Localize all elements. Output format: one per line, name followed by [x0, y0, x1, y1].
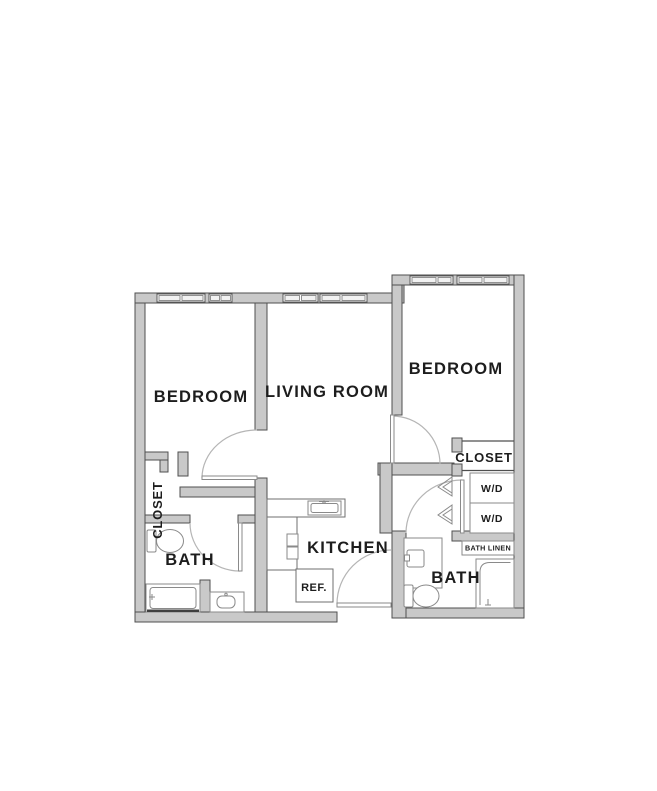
wall-hall-left: [380, 463, 392, 533]
wall-bedroom-living-lower: [255, 478, 267, 612]
floor-plan: BEDROOM LIVING ROOM BEDROOM CLOSET BATH …: [0, 0, 657, 791]
label-bedroom-right: BEDROOM: [409, 360, 504, 378]
wall-bedroom2-left: [392, 285, 402, 415]
label-closet-left: CLOSET: [150, 481, 165, 539]
label-wd-upper: W/D: [481, 483, 503, 495]
wall-tub-stub: [200, 580, 210, 612]
wall-outer-left: [135, 293, 145, 622]
door-leaf-bedroom1: [202, 476, 257, 480]
toilet2-tank-icon: [404, 585, 413, 607]
door-leaf-bedroom2: [391, 415, 395, 463]
door-leaf-entry: [337, 603, 391, 607]
wall-bottom-left: [135, 612, 337, 622]
floor-plan-drawing: BEDROOM LIVING ROOM BEDROOM CLOSET BATH …: [0, 0, 657, 791]
wall-outer-right: [514, 275, 524, 618]
door-leaf-bath1: [239, 523, 243, 571]
toilet2-icon: [413, 585, 439, 607]
range-icon: [287, 534, 298, 546]
label-kitchen: KITCHEN: [307, 539, 389, 557]
label-living-room: LIVING ROOM: [265, 383, 389, 401]
wall-bedroom-living-upper: [255, 303, 267, 430]
wall-closet1-hook-v: [160, 460, 168, 472]
label-bath-right: BATH: [431, 569, 480, 587]
wall-closet1-right: [178, 452, 188, 476]
label-bedroom-left: BEDROOM: [154, 388, 249, 406]
wall-closet1-hook-h: [145, 452, 168, 460]
label-bath-left: BATH: [165, 551, 214, 569]
door-leaf-bath2: [461, 480, 465, 533]
label-ref: REF.: [301, 582, 327, 594]
wall-closet2-stub-bottom: [452, 464, 462, 476]
label-bath-linen: BATH LINEN: [465, 544, 511, 553]
label-closet-right: CLOSET: [455, 450, 513, 465]
wall-bottom-right-bath: [392, 608, 524, 618]
wall-bath1-top-b: [238, 515, 255, 523]
wall-bedroom1-bottom: [180, 487, 255, 497]
tub-edge: [147, 610, 199, 613]
label-wd-lower: W/D: [481, 513, 503, 525]
